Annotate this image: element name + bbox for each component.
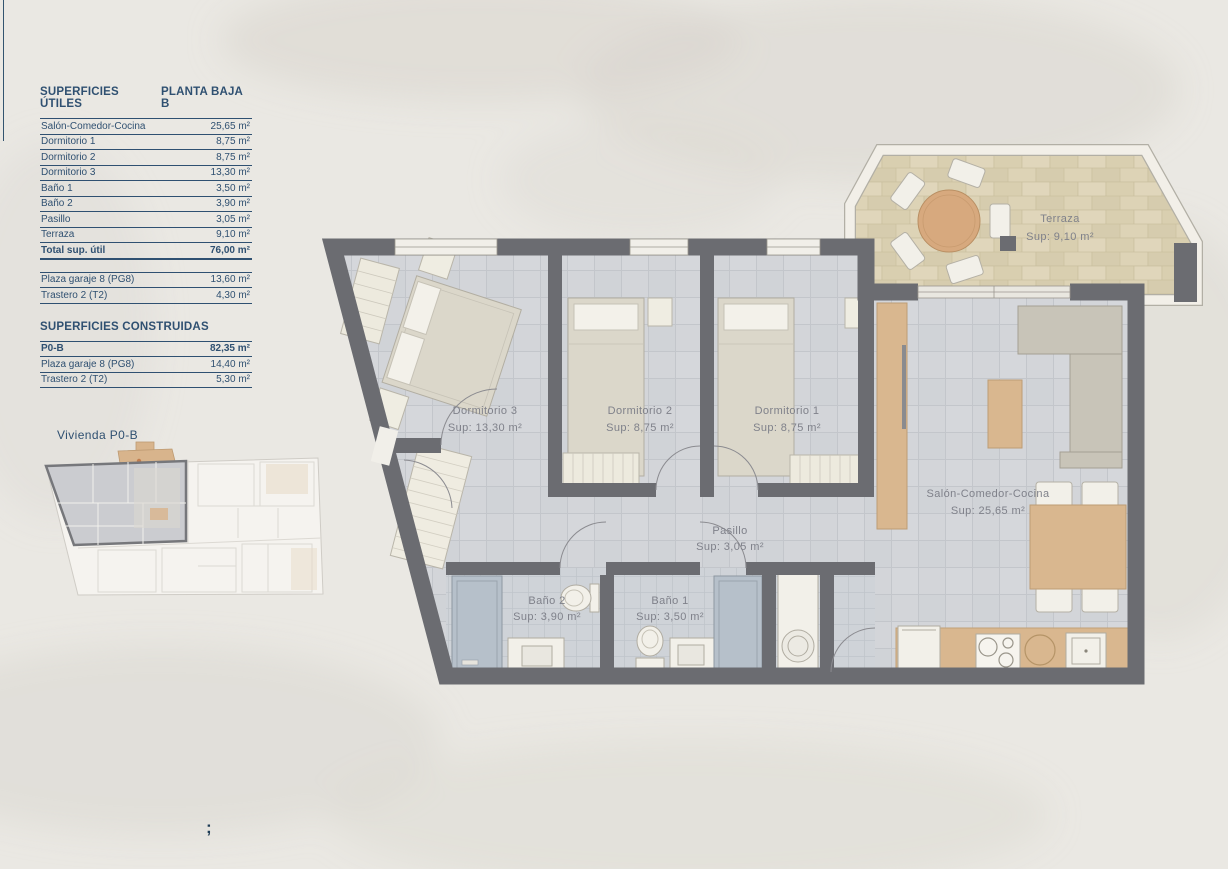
terrace-corner-wall <box>1174 243 1197 302</box>
terrace <box>850 150 1197 302</box>
utiles-extra-rows: Plaza garaje 8 (PG8)13,60 m² Trastero 2 … <box>40 272 252 304</box>
table-row: Plaza garaje 8 (PG8)13,60 m² <box>40 273 252 289</box>
room-sup-label: Sup: 25,65 m² <box>951 505 1025 517</box>
terrace-column <box>1000 236 1016 251</box>
shower-symbol <box>714 576 762 674</box>
room-sup-label: Sup: 8,75 m² <box>753 422 821 434</box>
table-row: Baño 13,50 m² <box>40 181 252 197</box>
room-sup-label: Sup: 8,75 m² <box>606 422 674 434</box>
kitchen-counter-symbol <box>896 626 1136 672</box>
sink-symbol <box>670 638 714 672</box>
shower-symbol <box>452 576 502 674</box>
mini-plan-terrace-other <box>291 548 317 590</box>
utiles-rows: Salón-Comedor-Cocina25,65 m² Dormitorio … <box>40 118 252 260</box>
table-row: Pasillo3,05 m² <box>40 212 252 228</box>
mini-key-plan <box>46 442 323 595</box>
footer-logo-mark: ; <box>206 818 212 838</box>
room-sup-label: Sup: 3,05 m² <box>696 541 764 553</box>
surfaces-panel: SUPERFICIES ÚTILES PLANTA BAJA B Salón-C… <box>40 86 252 388</box>
page-left-rule <box>3 0 4 141</box>
mini-plan-title: Vivienda P0-B <box>57 428 138 442</box>
table-row: Baño 23,90 m² <box>40 197 252 213</box>
table-row: Plaza garaje 8 (PG8)14,40 m² <box>40 357 252 373</box>
room-label: Pasillo <box>712 525 747 537</box>
construidas-title: SUPERFICIES CONSTRUIDAS <box>40 321 252 333</box>
plan-level-title: PLANTA BAJA B <box>161 86 252 110</box>
room-sup-label: Sup: 3,50 m² <box>636 611 704 623</box>
table-row: P0-B82,35 m² <box>40 342 252 358</box>
table-row: Dormitorio 28,75 m² <box>40 150 252 166</box>
room-label: Baño 2 <box>528 595 565 607</box>
room-sup-label: Sup: 9,10 m² <box>1026 231 1094 243</box>
table-row: Trastero 2 (T2)5,30 m² <box>40 373 252 389</box>
table-total-row: Total sup. útil76,00 m² <box>40 243 252 260</box>
table-row: Trastero 2 (T2)4,30 m² <box>40 288 252 304</box>
coffee-table-symbol <box>988 380 1022 448</box>
mini-plan-terrace-other <box>266 464 308 494</box>
construidas-rows: P0-B82,35 m² Plaza garaje 8 (PG8)14,40 m… <box>40 341 252 389</box>
room-sup-label: Sup: 13,30 m² <box>448 422 522 434</box>
room-label: Dormitorio 2 <box>608 405 673 417</box>
table-row: Dormitorio 18,75 m² <box>40 135 252 151</box>
toilet-symbol <box>636 626 664 668</box>
room-label: Dormitorio 3 <box>453 405 518 417</box>
room-sup-label: Sup: 3,90 m² <box>513 611 581 623</box>
room-label: Salón-Comedor-Cocina <box>927 488 1050 500</box>
table-row: Terraza9,10 m² <box>40 228 252 244</box>
room-label: Dormitorio 1 <box>755 405 820 417</box>
toilet-symbol <box>561 584 599 612</box>
washing-machine-symbol <box>778 572 818 674</box>
sliding-glass-door <box>918 286 1070 298</box>
table-row: Salón-Comedor-Cocina25,65 m² <box>40 119 252 135</box>
room-label: Baño 1 <box>651 595 688 607</box>
room-label: Terraza <box>1040 213 1080 225</box>
utiles-title: SUPERFICIES ÚTILES <box>40 86 161 110</box>
table-row: Dormitorio 313,30 m² <box>40 166 252 182</box>
tv-cabinet-symbol <box>877 303 907 529</box>
sink-symbol <box>508 638 564 672</box>
